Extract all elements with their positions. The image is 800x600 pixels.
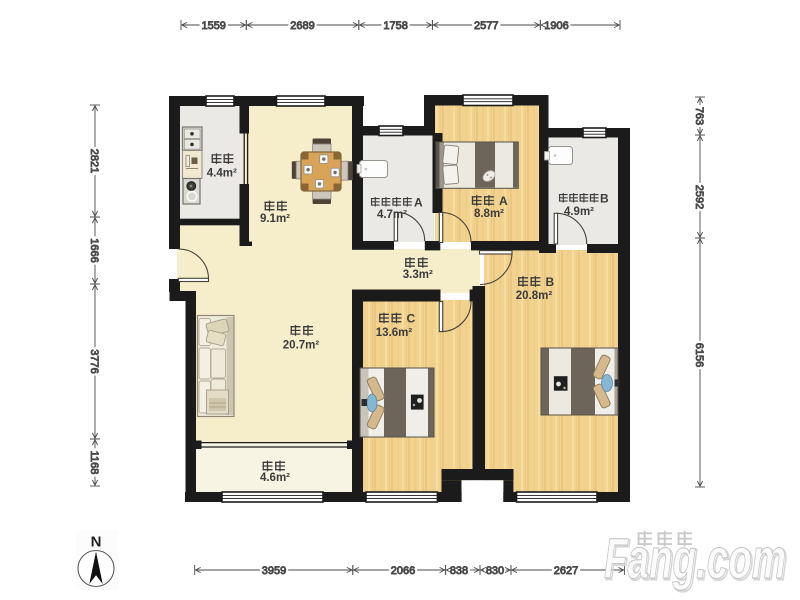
svg-text:13.6m²: 13.6m² xyxy=(376,327,413,339)
svg-text:2821: 2821 xyxy=(88,149,100,173)
svg-text:2627: 2627 xyxy=(554,565,578,577)
svg-text:1666: 1666 xyxy=(88,238,100,262)
svg-text:1559: 1559 xyxy=(201,20,225,32)
svg-text:3.3m²: 3.3m² xyxy=(403,269,433,281)
svg-text:2592: 2592 xyxy=(693,185,705,209)
svg-text:830: 830 xyxy=(486,565,504,577)
svg-text:3776: 3776 xyxy=(88,349,100,373)
svg-text:4.9m²: 4.9m² xyxy=(564,206,594,218)
svg-text:763: 763 xyxy=(693,107,705,125)
svg-text:4.4m²: 4.4m² xyxy=(207,167,237,179)
svg-text:2066: 2066 xyxy=(391,565,415,577)
svg-text:20.7m²: 20.7m² xyxy=(283,339,320,351)
svg-text:A: A xyxy=(499,194,508,208)
svg-text:C: C xyxy=(407,312,416,326)
svg-text:4.6m²: 4.6m² xyxy=(260,472,290,484)
svg-text:N: N xyxy=(91,534,102,551)
svg-text:A: A xyxy=(414,196,423,210)
svg-text:6156: 6156 xyxy=(693,343,705,367)
svg-text:2689: 2689 xyxy=(290,20,314,32)
svg-text:Fang.com: Fang.com xyxy=(604,527,786,591)
svg-text:9.1m²: 9.1m² xyxy=(260,213,290,225)
svg-text:2577: 2577 xyxy=(474,20,498,32)
svg-text:3959: 3959 xyxy=(262,565,286,577)
svg-text:4.7m²: 4.7m² xyxy=(377,209,407,221)
svg-text:20.8m²: 20.8m² xyxy=(516,290,553,302)
svg-text:1168: 1168 xyxy=(88,451,100,475)
svg-text:838: 838 xyxy=(450,565,468,577)
svg-text:B: B xyxy=(600,192,609,206)
svg-text:8.8m²: 8.8m² xyxy=(474,208,504,220)
svg-text:1906: 1906 xyxy=(544,20,568,32)
svg-text:1758: 1758 xyxy=(383,20,407,32)
svg-text:B: B xyxy=(546,275,555,289)
